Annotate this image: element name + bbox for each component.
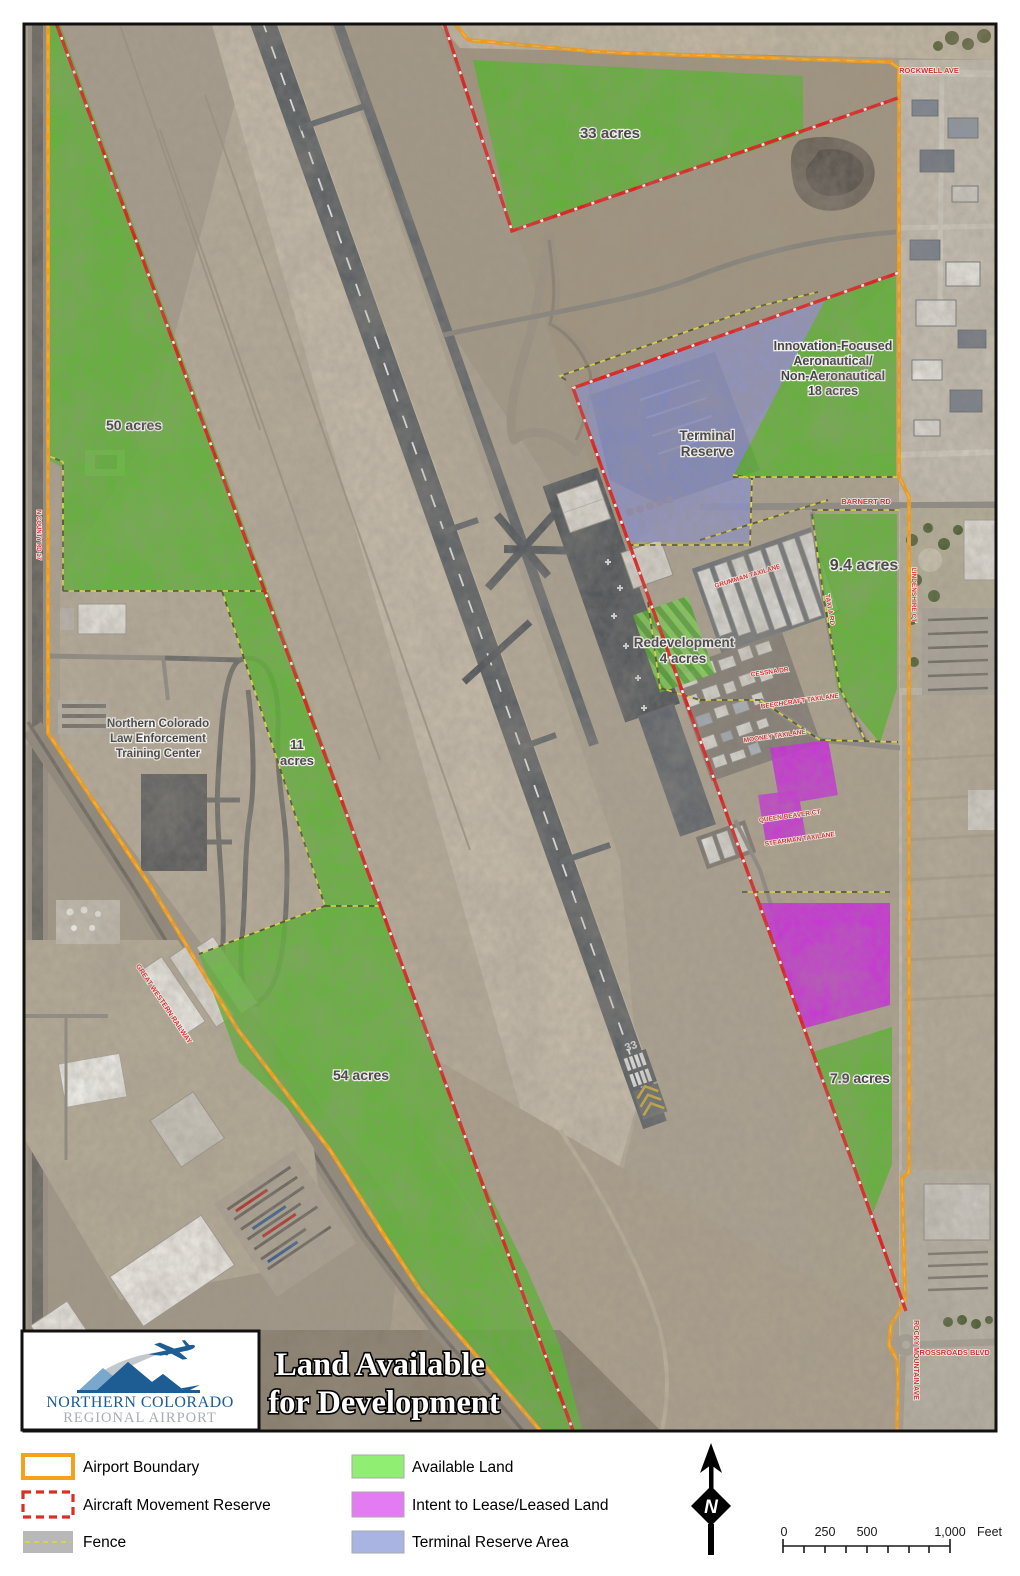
svg-text:NORTHERN COLORADO: NORTHERN COLORADO [46, 1394, 234, 1411]
svg-text:Land Available: Land Available [275, 1347, 485, 1383]
svg-text:0: 0 [781, 1525, 788, 1539]
svg-text:Fence: Fence [83, 1534, 126, 1551]
svg-text:Airport Boundary: Airport Boundary [83, 1459, 200, 1476]
svg-text:Aircraft Movement Reserve: Aircraft Movement Reserve [83, 1497, 271, 1514]
svg-text:1,000: 1,000 [934, 1525, 965, 1539]
svg-text:REGIONAL AIRPORT: REGIONAL AIRPORT [63, 1410, 217, 1426]
svg-text:500: 500 [857, 1525, 878, 1539]
svg-text:Intent to Lease/Leased Land: Intent to Lease/Leased Land [412, 1497, 609, 1514]
svg-text:Feet: Feet [977, 1525, 1003, 1539]
svg-text:for Development: for Development [268, 1385, 500, 1421]
svg-text:Available Land: Available Land [412, 1459, 513, 1476]
svg-text:N: N [704, 1497, 719, 1518]
svg-text:250: 250 [815, 1525, 836, 1539]
svg-text:Terminal Reserve Area: Terminal Reserve Area [412, 1534, 569, 1551]
